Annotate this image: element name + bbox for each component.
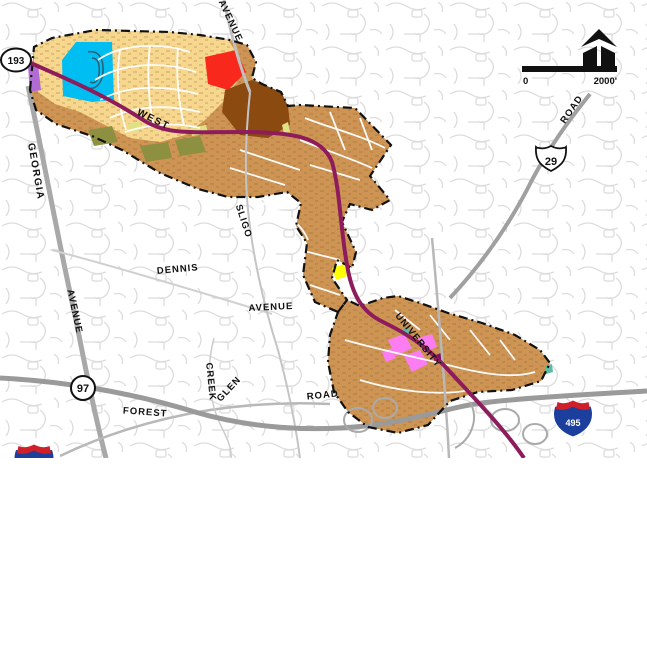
zone-pd — [62, 42, 114, 102]
corridor-map-svg: 193 97 29 495 — [0, 0, 647, 458]
map-legend: Commercial Residential Neighborhood (CRN… — [0, 458, 647, 661]
scale-start-label: 0 — [523, 76, 528, 87]
scale-end-label: 2000' — [594, 76, 617, 87]
route-shield-193: 193 — [1, 49, 31, 72]
zoning-map-page: 193 97 29 495 — [0, 0, 647, 661]
shield-495-number: 495 — [565, 418, 580, 428]
shield-29-number: 29 — [545, 156, 557, 168]
map-area: 193 97 29 495 — [0, 0, 647, 458]
label-avenue-mid: AVENUE — [248, 301, 293, 314]
shield-193-number: 193 — [8, 56, 25, 67]
route-shield-97: 97 — [71, 376, 95, 400]
shield-97-number: 97 — [77, 383, 89, 395]
